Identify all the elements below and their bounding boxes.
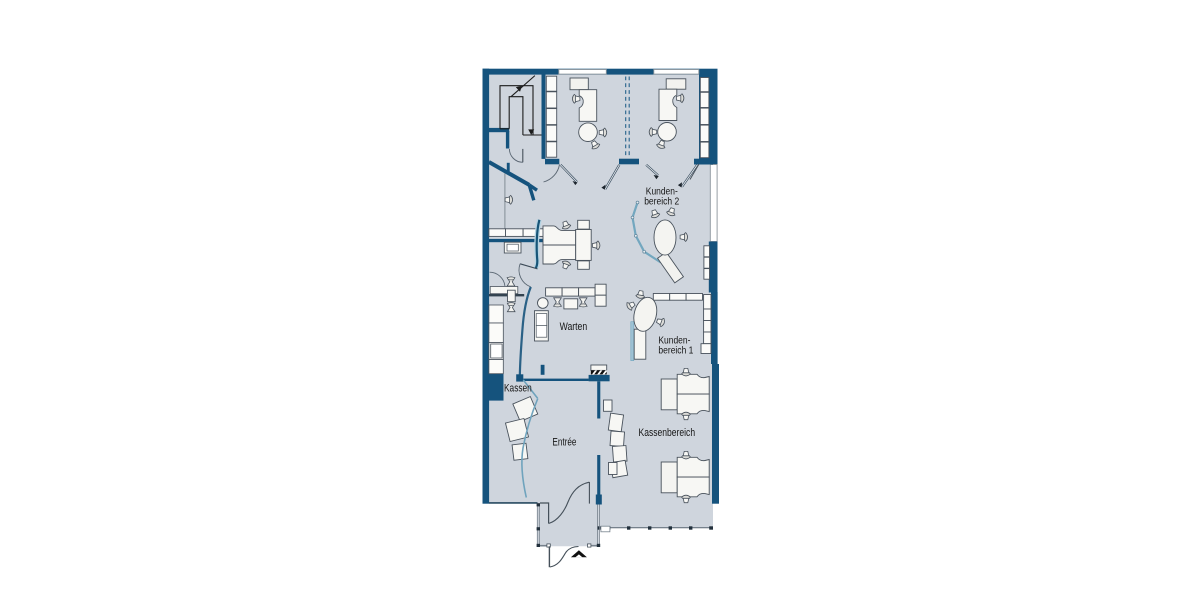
svg-text:bereich 1: bereich 1 (658, 345, 693, 356)
svg-text:Warten: Warten (560, 321, 588, 333)
svg-text:Entrée: Entrée (552, 437, 576, 449)
svg-text:Kassen: Kassen (504, 383, 532, 395)
svg-text:Kassenbereich: Kassenbereich (639, 427, 696, 439)
svg-text:bereich 2: bereich 2 (644, 196, 679, 207)
